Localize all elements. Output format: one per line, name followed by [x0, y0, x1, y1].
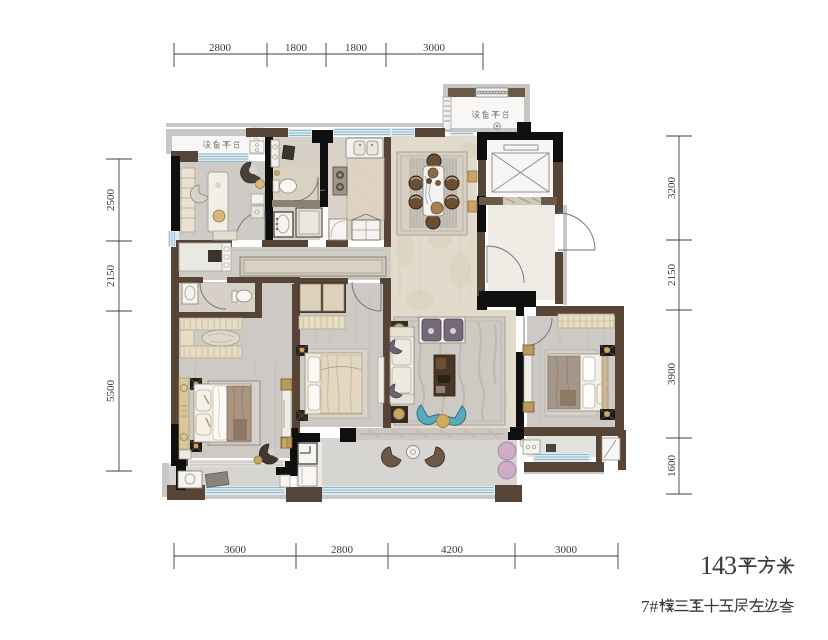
svg-text:3600: 3600 — [224, 544, 247, 556]
svg-text:7#: 7# — [641, 597, 659, 616]
svg-text:3000: 3000 — [423, 42, 446, 54]
svg-text:3000: 3000 — [555, 544, 578, 556]
svg-text:2500: 2500 — [105, 189, 117, 212]
svg-text:1800: 1800 — [285, 42, 308, 54]
svg-text:2150: 2150 — [105, 265, 117, 288]
svg-text:2800: 2800 — [209, 42, 232, 54]
svg-text:1800: 1800 — [345, 42, 368, 54]
svg-text:143: 143 — [700, 551, 736, 580]
svg-text:3900: 3900 — [666, 363, 678, 386]
svg-text:2800: 2800 — [331, 544, 354, 556]
svg-text:2150: 2150 — [666, 264, 678, 287]
svg-text:5500: 5500 — [105, 380, 117, 403]
svg-text:3200: 3200 — [666, 177, 678, 200]
svg-text:4200: 4200 — [441, 544, 464, 556]
svg-text:1600: 1600 — [666, 455, 678, 478]
